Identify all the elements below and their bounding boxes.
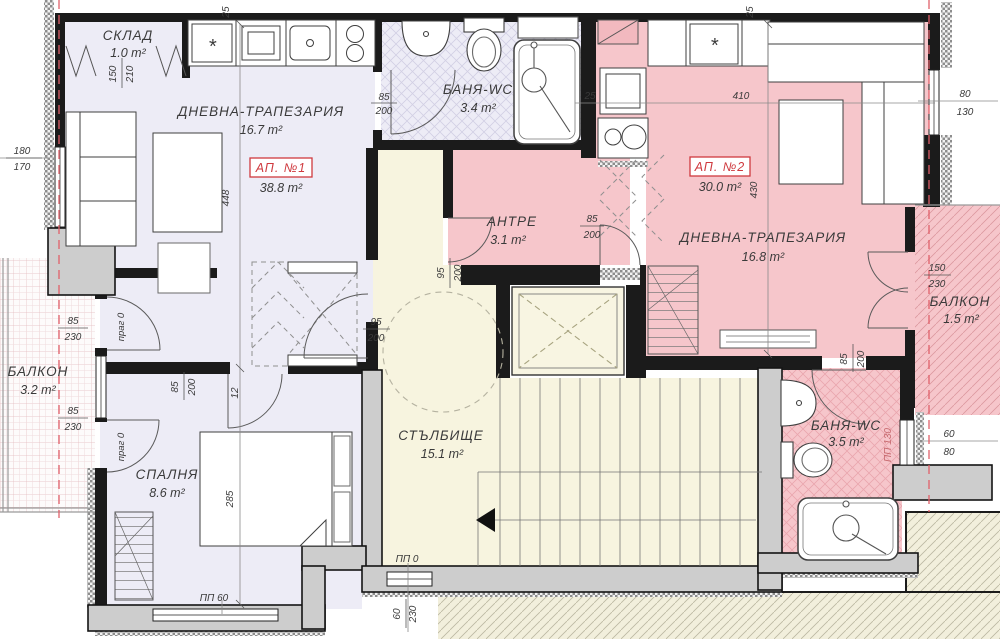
dim-winr-w: 80 [959,89,971,100]
ap1-label: АП. №1 [255,161,307,175]
dim-hall-h: 200 [187,378,198,396]
dim-winb2-h: 80 [943,447,955,458]
wall-antre-west [443,148,453,218]
ap2-label: АП. №2 [694,160,746,174]
dim-prag-bot: праг 0 [116,432,127,461]
insul-right-top [941,2,952,68]
star2-icon: * [710,35,719,57]
wall-elev-north-a [461,265,600,285]
bed [200,432,352,546]
side-table1 [158,243,210,293]
closet-bar-top [288,262,357,273]
stairs-floor [500,378,762,568]
wall-balc-b [95,348,107,356]
dim-wins-h: 230 [408,605,419,623]
balcony2-hatch [915,205,1000,415]
bedroom-name: СПАЛНЯ [136,467,199,482]
wall-elev-north-b [640,265,646,285]
dim-sklad-door-h: 210 [125,65,136,83]
closet-bar-bottom [288,355,357,366]
bath1-area: 3.4 m² [460,101,496,115]
wall-right-mid [923,135,940,207]
dim-entry1-h: 200 [367,333,385,344]
dim-top25-right: 25 [745,6,756,19]
bedroom-area: 8.6 m² [149,486,185,500]
wall-balc2-b [905,330,915,408]
dim-pp0: ПП 0 [396,554,419,565]
wall-balc2-a [905,207,915,252]
living2-area: 16.8 m² [742,250,785,264]
shower2-head-icon [833,515,859,541]
wall-bedroom-east [362,370,382,570]
dim-bath2-w: 85 [839,353,850,365]
dim-winr-h: 130 [957,107,974,118]
sklad-area: 1.0 m² [110,46,146,60]
dim-wins-w: 60 [392,608,403,620]
bath2-name: БАНЯ-WC [811,418,881,433]
dim-sklad-door-w: 150 [108,65,119,82]
dim-bed-l: 285 [225,490,236,508]
threshold-ap2 [600,268,640,280]
dim-balc2-w: 150 [929,263,946,274]
bath1-shelf [518,17,578,38]
dining-table1 [153,133,222,232]
roof-right [906,512,1000,597]
dim-hall-w: 85 [170,381,181,393]
dim-living2-w: 410 [733,91,750,102]
wall-se-corner [893,465,992,500]
balcony2-area: 1.5 m² [943,312,979,326]
sofa2-top [768,22,924,82]
dim-bath1-door-w: 85 [378,92,390,103]
toilet2-tank-icon [781,442,793,478]
pillow2-icon [334,492,350,542]
antre-area: 3.1 m² [490,233,526,247]
insul-left [44,0,54,230]
dim-winleft-w: 180 [14,146,31,157]
stove1-icon [347,26,364,43]
ap2-area: 30.0 m² [699,180,742,194]
dim-antre-h: 200 [583,230,601,241]
wall-living2-south-a [626,356,822,370]
stairs-name: СТЪЛБИЩЕ [398,428,484,443]
dim-hall-t: 12 [230,387,241,399]
dim-balc1top-w: 85 [67,316,79,327]
living2-name: ДНЕВНА-ТРАПЕЗАРИЯ [678,230,846,245]
wall-balc-d [95,468,107,610]
kitchen2-edge [598,161,648,167]
stairs-area: 15.1 m² [421,447,464,461]
balcony1-name: БАЛКОН [8,364,69,379]
bath2-area: 3.5 m² [828,435,864,449]
dim-living1-h: 448 [221,189,232,206]
landing-floor [373,142,443,570]
dim-prag-top: праг 0 [116,312,127,341]
dim-entry1-w: 95 [370,317,382,328]
wall-hall-bedroom-a [100,362,230,374]
dim-balc1bot-w: 85 [67,406,79,417]
dim-antre-w: 85 [586,214,598,225]
ap1-area: 38.8 m² [260,181,303,195]
dim-top25-left: 25 [221,6,232,19]
sofa2-right [862,82,924,204]
dim-winb2-w: 60 [943,429,955,440]
dim-pp60: ПП 60 [200,593,229,604]
dim-bath1-door-h: 200 [375,106,393,117]
star1-icon: * [208,36,217,58]
sklad-name: СКЛАД [103,28,154,43]
balcony2-name: БАЛКОН [930,294,991,309]
wall-balc-c [95,418,107,422]
floor-plan: СКЛАД 1.0 m² ДНЕВНА-ТРАПЕЗАРИЯ 16.7 m² Б… [0,0,1000,639]
sofa1 [66,112,136,246]
wall-bath1-east [581,13,596,158]
dim-bath2-h: 200 [856,350,867,368]
bath1-name: БАНЯ-WC [443,82,513,97]
wall-elev-west [496,285,510,378]
dim-balc1top-h: 230 [64,332,82,343]
coffee-table2 [779,100,843,184]
insul-right-mid [941,135,952,205]
dim-kitchen2-25: 25 [583,91,596,102]
living1-area: 16.7 m² [240,123,283,137]
balcony1-area: 3.2 m² [20,383,56,397]
dim-balc2-h: 230 [928,279,946,290]
dim-winleft-h: 170 [14,162,31,173]
living1-name: ДНЕВНА-ТРАПЕЗАРИЯ [176,104,344,119]
pillow-icon [334,436,350,486]
insul-bedroom-west [87,468,96,608]
wall-ap1-east-a [366,148,378,260]
wall-step-connector [302,566,325,629]
wall-right-top [928,13,940,70]
dim-entry1b-h: 200 [453,264,464,282]
dim-pp130: ПП 130 [883,428,894,462]
antre-name: АНТРЕ [486,214,537,229]
insul-balc2 [916,412,924,467]
roof-bottom [438,592,1000,639]
floor-plan-svg: СКЛАД 1.0 m² ДНЕВНА-ТРАПЕЗАРИЯ 16.7 m² Б… [0,0,1000,639]
dim-living2-h: 430 [749,181,760,198]
dim-balc1bot-h: 230 [64,422,82,433]
shower-head-icon [522,68,546,92]
elevator [512,287,624,375]
dim-entry1b-w: 95 [436,267,447,279]
